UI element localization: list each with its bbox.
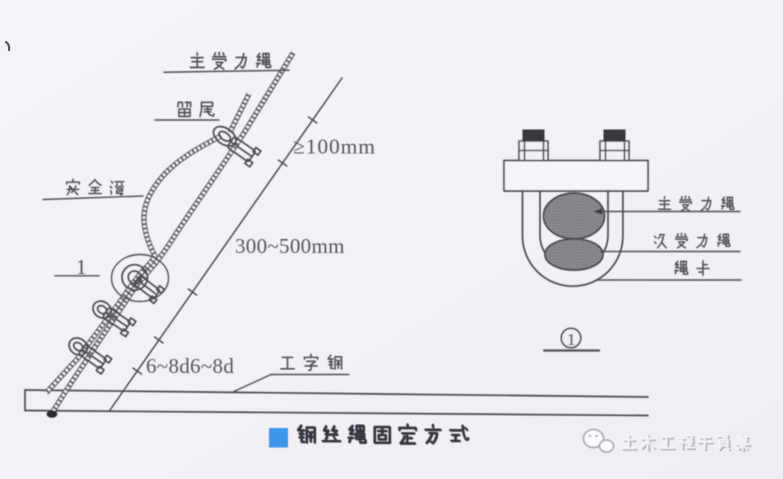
svg-text:≥100mm: ≥100mm xyxy=(293,135,376,159)
svg-text:300~500mm: 300~500mm xyxy=(235,234,345,258)
svg-text:6~8d6~8d: 6~8d6~8d xyxy=(146,354,234,378)
svg-text:1: 1 xyxy=(567,330,576,349)
